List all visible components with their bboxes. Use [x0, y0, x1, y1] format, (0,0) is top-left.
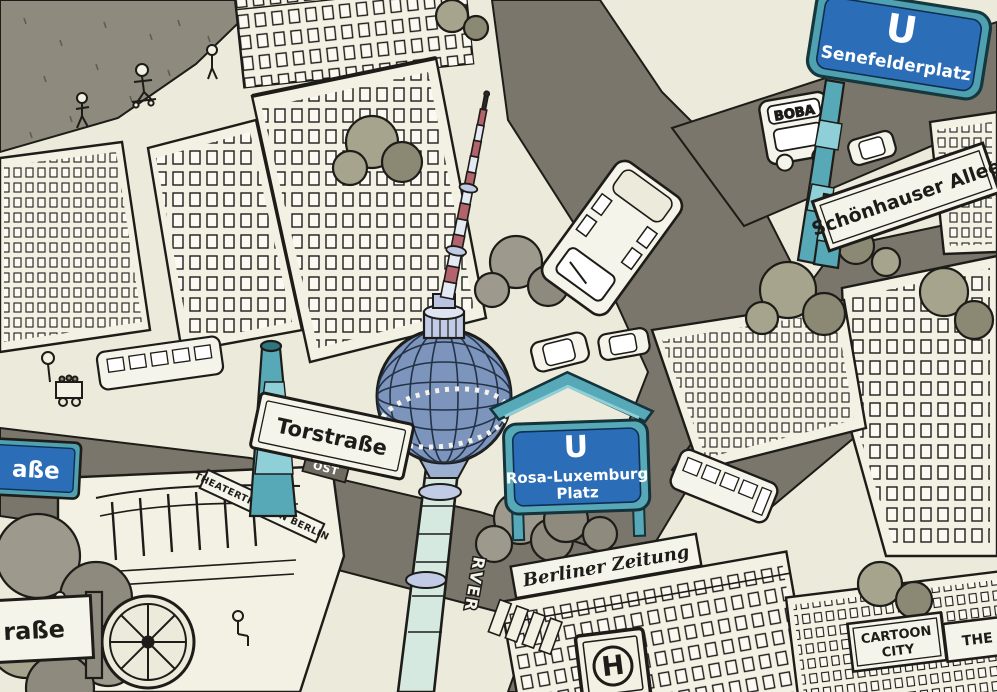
svg-text:H: H: [600, 650, 626, 684]
svg-text:Platz: Platz: [556, 483, 599, 502]
left-edge-partial-sign: aße: [0, 437, 81, 499]
illustrated-berlin-map: BOBA: [0, 0, 997, 692]
bottom-left-partial-sign: raße: [0, 596, 94, 665]
svg-text:U: U: [563, 430, 589, 466]
svg-text:aße: aße: [11, 456, 60, 484]
tram-stop-h-sign: H: [575, 628, 651, 692]
svg-text:raße: raße: [3, 615, 66, 646]
volksbuehne-wheel-sculpture: [102, 596, 194, 688]
building-left-strip: [0, 142, 150, 352]
cartoon-city-sign: CARTOON CITY: [847, 612, 946, 671]
map-illustration: BOBA: [0, 0, 997, 692]
